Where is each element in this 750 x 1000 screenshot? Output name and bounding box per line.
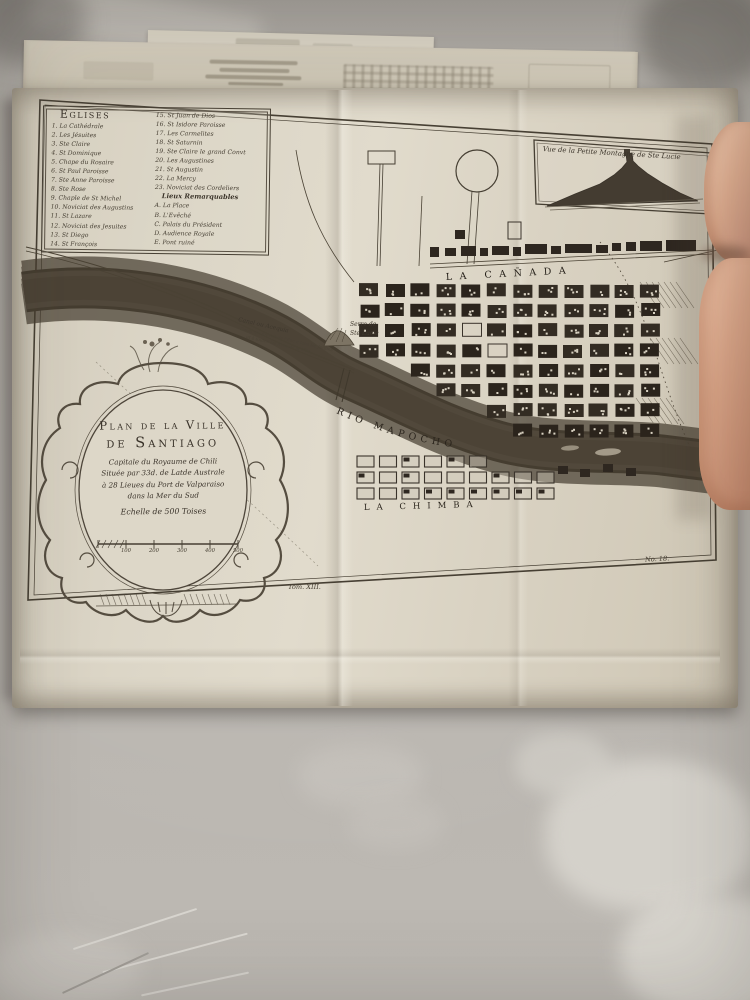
- plate-number-label: No. 18.: [645, 554, 670, 563]
- map-subtitle: Capitale du Royaume de ChiliSituée par 3…: [80, 455, 246, 502]
- photo-of-antique-map: LA CAÑADA RIO MAPOCHO LA CHIMBA Serre de…: [0, 0, 750, 1000]
- legend-left-column: 1. La Cathédrale2. Les Jésuites3. Ste Cl…: [50, 122, 154, 250]
- hill-label-line1: Serre de: [350, 321, 377, 328]
- scale-tick: 100: [114, 548, 138, 554]
- legend-box: Eglises 1. La Cathédrale2. Les Jésuites3…: [41, 105, 271, 255]
- scale-label: Echelle de 500 Toises: [80, 506, 246, 517]
- scale-tick: 200: [142, 548, 166, 554]
- legend-right-column: 15. St Juan de Dios16. St Isidore Parois…: [154, 111, 268, 248]
- fingertip-bottom: [699, 258, 750, 510]
- scale-tick: 500: [226, 548, 250, 554]
- scale-tick: 400: [198, 548, 222, 554]
- volume-label: Tom. XIII.: [288, 583, 321, 591]
- cartouche-pedestal-hatch: [96, 594, 238, 606]
- pond-feature: [368, 151, 395, 266]
- subtitle-line: à 28 Lieues du Port de Valparaiso: [80, 478, 246, 491]
- district-label-la-chimba: LA CHIMBA: [364, 500, 480, 513]
- subtitle-line: dans la Mer du Sud: [80, 489, 246, 502]
- legend-entry: E. Pont ruiné: [154, 238, 266, 249]
- scale-tick-numbers: 100200300400500: [114, 548, 250, 554]
- cartouche: Plan de la Ville de Santiago Capitale du…: [79, 417, 246, 517]
- legend-title: Eglises: [60, 108, 110, 122]
- street-label-la-canada: LA CAÑADA: [446, 265, 574, 283]
- hill-label-line2: Ste Lucie: [350, 330, 379, 337]
- legend-entry: 14. St François: [50, 239, 152, 249]
- scale-tick: 300: [170, 548, 194, 554]
- map-title-line2: de Santiago: [80, 434, 246, 452]
- map-title-line1: Plan de la Ville: [79, 417, 245, 433]
